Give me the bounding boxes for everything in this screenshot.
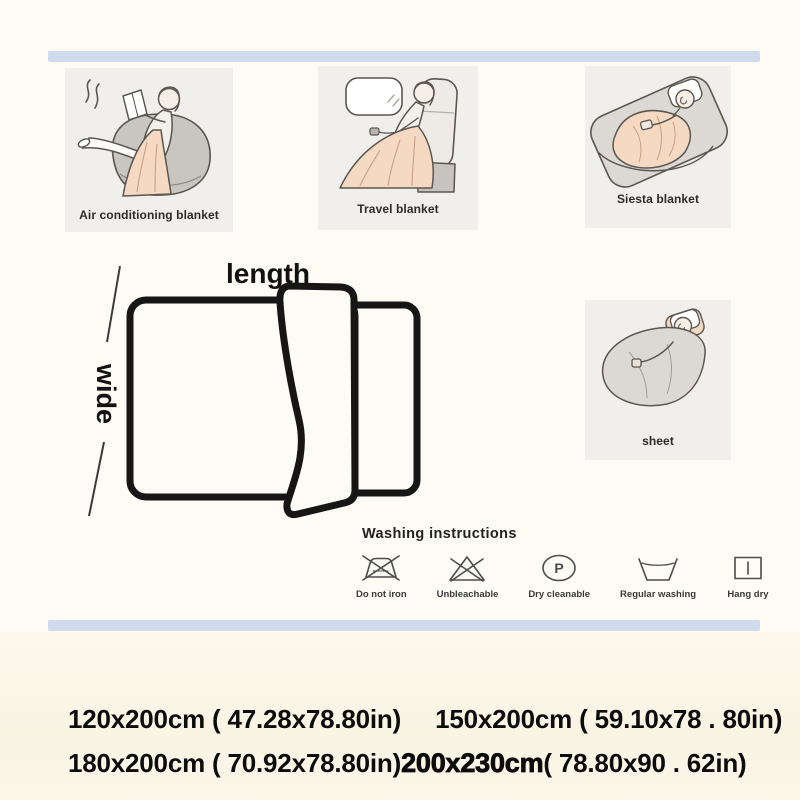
wash-label: Do not iron — [356, 589, 407, 600]
size-row-2: 180x200cm ( 70.92x78.80in)200x230cm( 78.… — [68, 748, 747, 779]
dry-clean-letter: P — [555, 560, 564, 576]
usage-panel-aircon: Air conditioning blanket — [65, 68, 233, 232]
wash-item-regular-washing: Regular washing — [620, 551, 696, 600]
size-120x200: 120x200cm ( 47.28x78.80in) — [68, 704, 401, 734]
size-200x230-bold: 200x230cm — [401, 748, 543, 778]
usage-panel-sheet: sheet — [585, 300, 731, 460]
size-row-1: 120x200cm ( 47.28x78.80in)150x200cm ( 59… — [68, 704, 782, 735]
wash-label: Hang dry — [727, 589, 768, 600]
do-not-iron-icon — [359, 551, 403, 585]
washing-icons-row: Do not iron Unbleachable P Dry cleanable… — [356, 551, 770, 600]
wash-item-unbleachable: Unbleachable — [437, 551, 499, 600]
hang-dry-icon — [726, 551, 770, 585]
aircon-panel-label: Air conditioning blanket — [65, 208, 233, 222]
wash-item-hang-dry: Hang dry — [726, 551, 770, 600]
wash-item-do-not-iron: Do not iron — [356, 551, 407, 600]
sheet-panel-label: sheet — [585, 434, 731, 448]
bottom-divider-bar — [48, 620, 760, 631]
wash-label: Regular washing — [620, 589, 696, 600]
size-180x200: 180x200cm ( 70.92x78.80in) — [68, 748, 401, 778]
washing-instructions-title: Washing instructions — [362, 526, 517, 542]
no-bleach-icon — [445, 551, 489, 585]
wash-tub-icon — [636, 551, 680, 585]
usage-panel-travel: Travel blanket — [318, 66, 478, 230]
dimension-diagram-icon: length wide — [85, 250, 435, 525]
wash-label: Unbleachable — [437, 589, 499, 600]
wash-label: Dry cleanable — [528, 589, 590, 600]
siesta-panel-label: Siesta blanket — [585, 192, 731, 206]
folded-flap-shape — [280, 286, 355, 515]
usage-panel-siesta: Siesta blanket — [585, 66, 731, 228]
size-150x200: 150x200cm ( 59.10x78 . 80in) — [435, 704, 782, 734]
blanket-dimension-diagram: length wide — [85, 250, 435, 525]
wide-label: wide — [91, 363, 121, 424]
dry-clean-icon: P — [537, 551, 581, 585]
travel-panel-label: Travel blanket — [318, 202, 478, 216]
wash-item-dry-cleanable: P Dry cleanable — [528, 551, 590, 600]
top-divider-bar — [48, 51, 760, 62]
size-200x230-inches: ( 78.80x90 . 62in) — [543, 748, 746, 778]
